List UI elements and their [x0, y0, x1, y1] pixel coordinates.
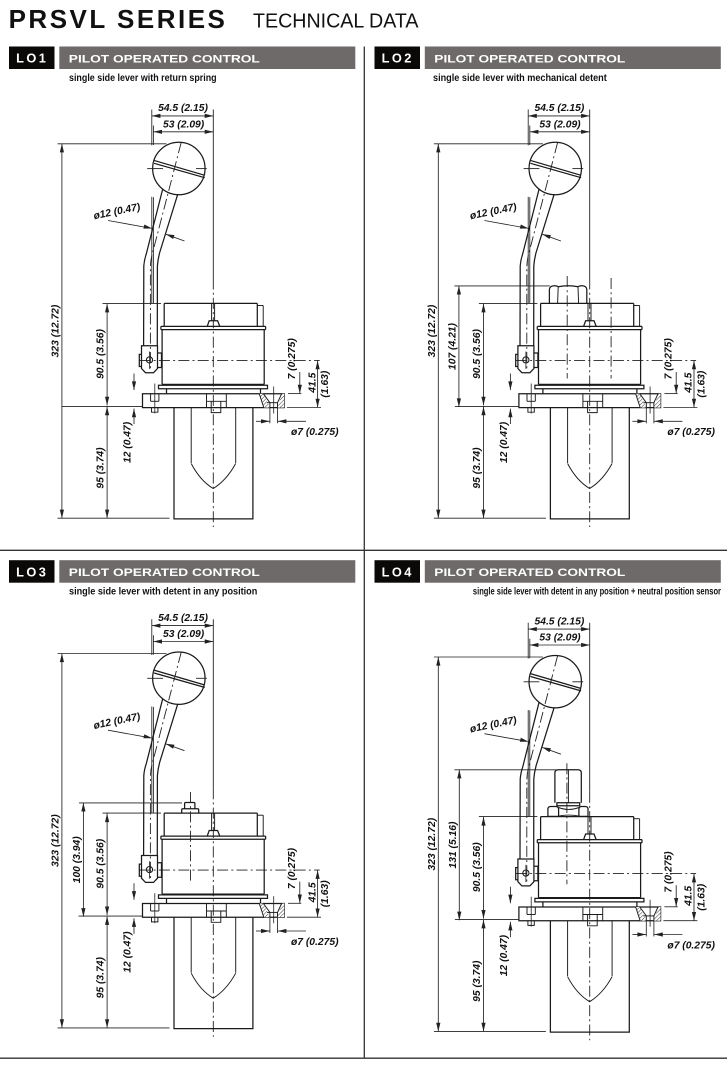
svg-text:323 (12.72): 323 (12.72): [50, 304, 61, 357]
svg-text:single side lever with return: single side lever with return spring: [69, 73, 217, 84]
svg-text:7 (0.275): 7 (0.275): [664, 338, 675, 380]
svg-text:ø7 (0.275): ø7 (0.275): [667, 940, 715, 951]
svg-text:12 (0.47): 12 (0.47): [122, 421, 133, 463]
svg-text:54.5 (2.15): 54.5 (2.15): [534, 103, 584, 114]
svg-text:95 (3.74): 95 (3.74): [472, 960, 483, 1002]
svg-text:53 (2.09): 53 (2.09): [163, 629, 205, 640]
svg-text:41.5: 41.5: [684, 886, 695, 907]
svg-text:41.5: 41.5: [684, 372, 695, 393]
svg-text:ø7 (0.275): ø7 (0.275): [291, 937, 339, 948]
svg-text:LO3: LO3: [16, 564, 48, 579]
svg-text:131 (5.16): 131 (5.16): [448, 821, 459, 869]
svg-text:PILOT OPERATED CONTROL: PILOT OPERATED CONTROL: [434, 53, 625, 65]
svg-text:LO1: LO1: [16, 51, 48, 66]
svg-text:100 (3.94): 100 (3.94): [72, 836, 83, 884]
svg-text:95 (3.74): 95 (3.74): [96, 447, 107, 489]
svg-text:90.5 (3.56): 90.5 (3.56): [96, 329, 107, 379]
svg-text:ø7 (0.275): ø7 (0.275): [667, 427, 715, 438]
svg-text:90.5 (3.56): 90.5 (3.56): [472, 329, 483, 379]
svg-text:95 (3.74): 95 (3.74): [96, 957, 107, 999]
svg-text:53 (2.09): 53 (2.09): [163, 119, 205, 130]
svg-text:53 (2.09): 53 (2.09): [539, 119, 581, 130]
svg-text:41.5: 41.5: [307, 882, 318, 903]
svg-text:95 (3.74): 95 (3.74): [472, 447, 483, 489]
svg-text:PILOT OPERATED CONTROL: PILOT OPERATED CONTROL: [434, 567, 625, 579]
svg-text:LO4: LO4: [382, 564, 414, 579]
svg-text:7 (0.275): 7 (0.275): [287, 847, 298, 889]
svg-text:12 (0.47): 12 (0.47): [122, 931, 133, 973]
svg-text:single side lever with mechani: single side lever with mechanical detent: [433, 73, 608, 84]
svg-text:323 (12.72): 323 (12.72): [427, 817, 438, 870]
svg-text:323 (12.72): 323 (12.72): [427, 304, 438, 357]
svg-text:ø7 (0.275): ø7 (0.275): [291, 427, 339, 438]
svg-text:single side lever with detent: single side lever with detent in any pos…: [69, 587, 257, 598]
svg-text:107 (4.21): 107 (4.21): [448, 322, 459, 370]
svg-text:PILOT OPERATED CONTROL: PILOT OPERATED CONTROL: [69, 53, 260, 65]
svg-text:(1.63): (1.63): [320, 370, 331, 397]
svg-text:53 (2.09): 53 (2.09): [539, 633, 581, 644]
svg-text:PILOT OPERATED CONTROL: PILOT OPERATED CONTROL: [69, 567, 260, 579]
svg-text:7 (0.275): 7 (0.275): [287, 338, 298, 380]
svg-text:54.5 (2.15): 54.5 (2.15): [534, 616, 584, 627]
svg-text:7 (0.275): 7 (0.275): [664, 851, 675, 893]
svg-text:12 (0.47): 12 (0.47): [499, 421, 510, 463]
svg-text:(1.63): (1.63): [320, 880, 331, 907]
svg-text:12 (0.47): 12 (0.47): [499, 934, 510, 976]
svg-text:54.5 (2.15): 54.5 (2.15): [158, 103, 208, 114]
svg-text:54.5 (2.15): 54.5 (2.15): [158, 613, 208, 624]
svg-text:TECHNICAL DATA: TECHNICAL DATA: [253, 10, 419, 33]
svg-text:90.5 (3.56): 90.5 (3.56): [472, 842, 483, 892]
svg-text:323 (12.72): 323 (12.72): [50, 814, 61, 867]
svg-text:41.5: 41.5: [307, 372, 318, 393]
svg-text:(1.63): (1.63): [697, 883, 708, 910]
svg-text:(1.63): (1.63): [697, 370, 708, 397]
svg-text:single side lever with detent: single side lever with detent in any pos…: [473, 587, 721, 598]
svg-text:LO2: LO2: [382, 51, 414, 66]
svg-text:PRSVL SERIES: PRSVL SERIES: [9, 4, 228, 34]
svg-text:90.5 (3.56): 90.5 (3.56): [96, 838, 107, 888]
